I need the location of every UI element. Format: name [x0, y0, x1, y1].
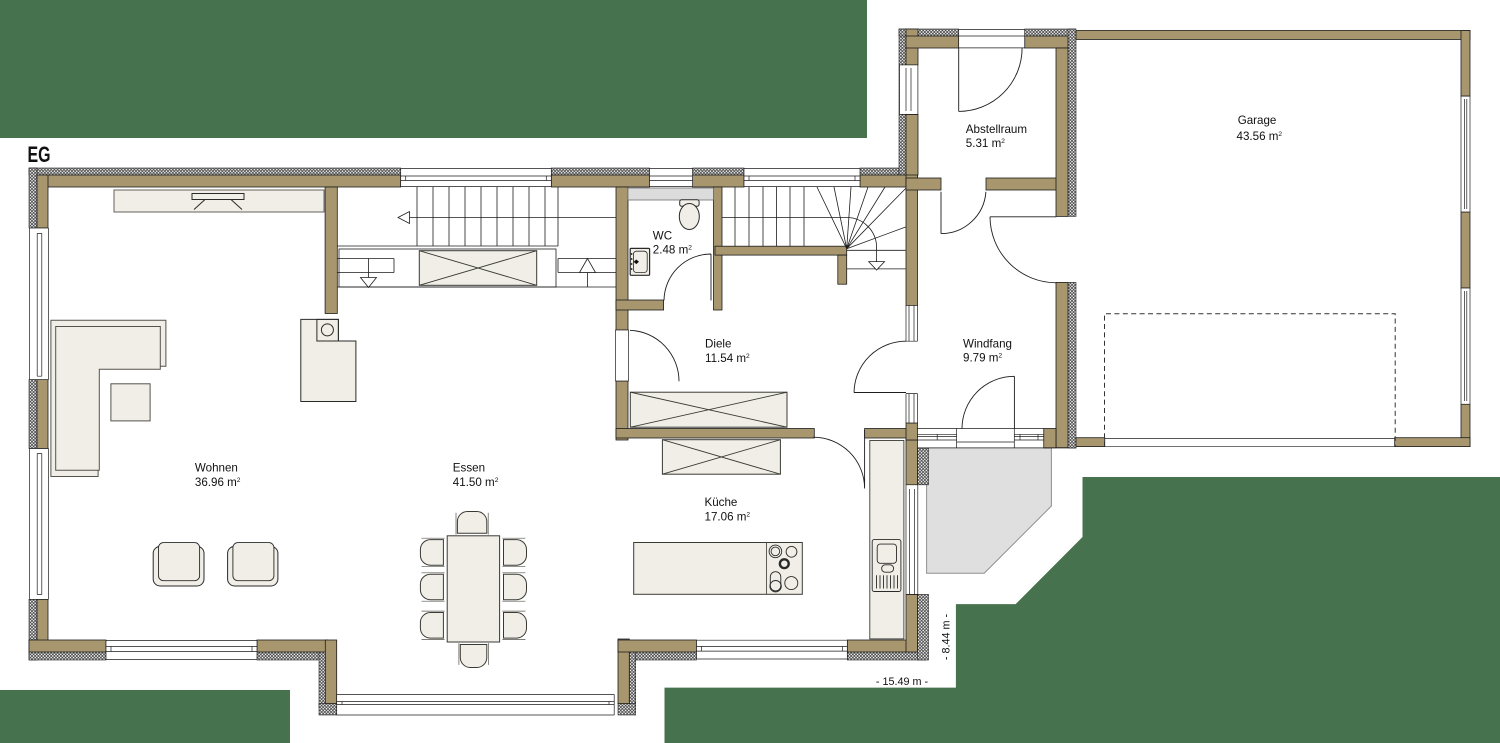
svg-text:Wohnen: Wohnen [195, 462, 238, 475]
svg-text:EG: EG [28, 142, 51, 167]
svg-text:- 8.44 m -: - 8.44 m - [941, 613, 953, 660]
svg-text:WC: WC [653, 230, 672, 243]
svg-text:Windfang: Windfang [963, 338, 1012, 351]
svg-text:17.06 m2: 17.06 m2 [705, 511, 751, 524]
svg-text:43.56 m2: 43.56 m2 [1237, 130, 1283, 143]
svg-text:Essen: Essen [453, 462, 485, 475]
svg-text:Küche: Küche [705, 496, 738, 509]
svg-text:- 15.49 m -: - 15.49 m - [876, 676, 929, 688]
svg-text:36.96 m2: 36.96 m2 [195, 476, 241, 489]
svg-text:5.31 m2: 5.31 m2 [966, 137, 1005, 150]
svg-text:2.48 m2: 2.48 m2 [653, 244, 692, 257]
svg-text:Garage: Garage [1238, 114, 1277, 127]
svg-text:9.79 m2: 9.79 m2 [963, 352, 1002, 365]
svg-text:Abstellraum: Abstellraum [966, 123, 1027, 136]
svg-text:Diele: Diele [705, 338, 731, 351]
svg-text:11.54 m2: 11.54 m2 [705, 352, 750, 365]
svg-text:41.50 m2: 41.50 m2 [453, 476, 499, 489]
